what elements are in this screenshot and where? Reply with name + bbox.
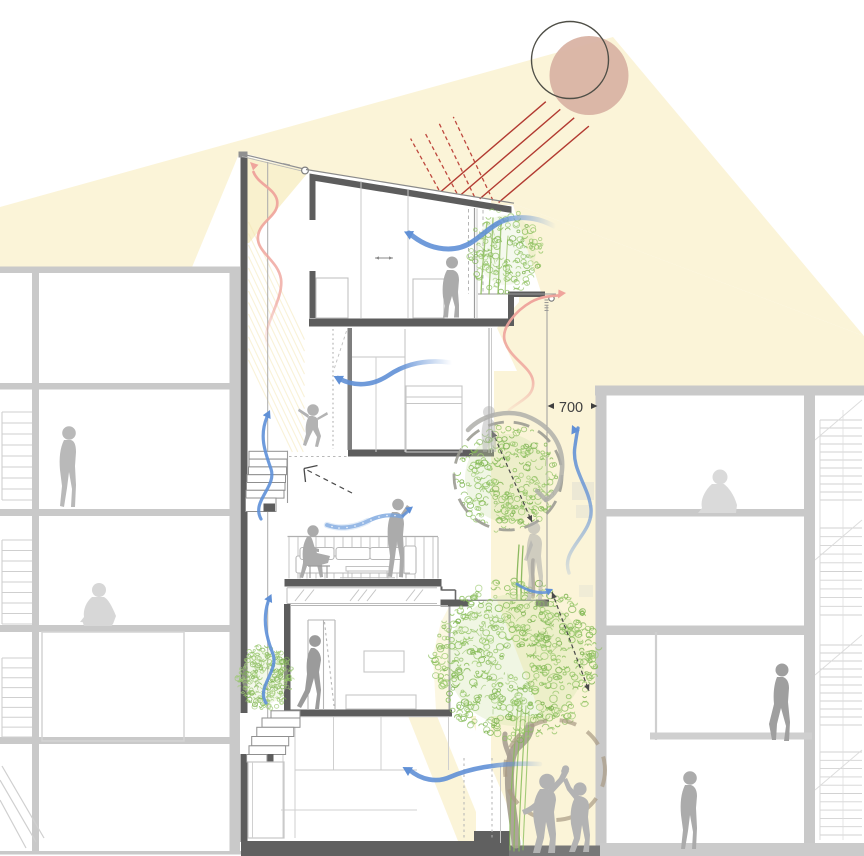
svg-text:700: 700 (559, 400, 583, 416)
